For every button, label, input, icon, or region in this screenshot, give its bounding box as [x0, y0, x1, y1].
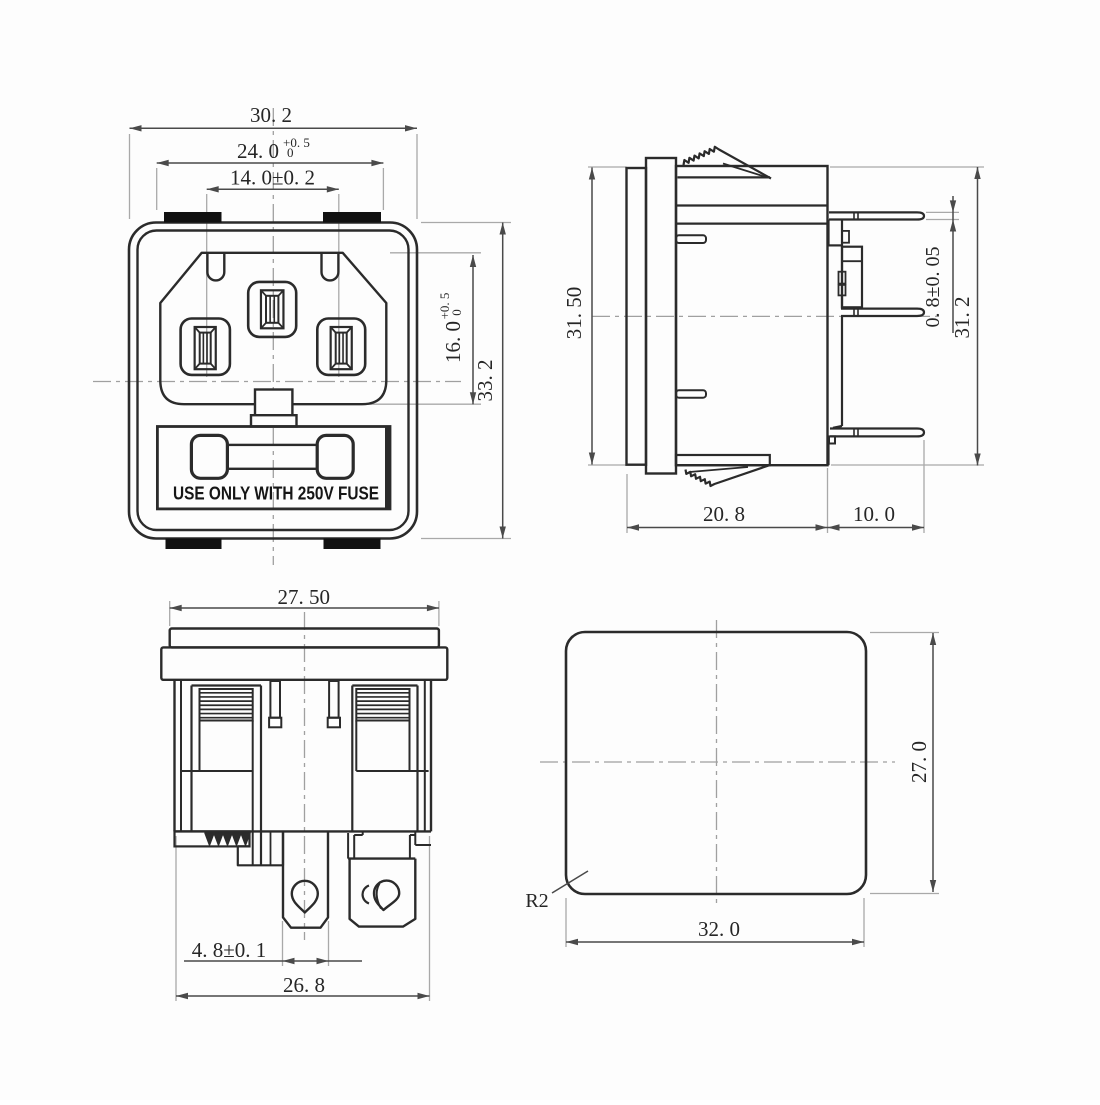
svg-text:16. 0: 16. 0 — [441, 321, 465, 363]
svg-text:0: 0 — [287, 145, 294, 160]
svg-text:0. 8±0. 05: 0. 8±0. 05 — [922, 247, 944, 328]
svg-text:14. 0±0. 2: 14. 0±0. 2 — [230, 166, 315, 190]
svg-text:0: 0 — [449, 309, 464, 316]
svg-text:32. 0: 32. 0 — [698, 917, 740, 941]
svg-text:27. 50: 27. 50 — [278, 585, 331, 609]
svg-text:4. 8±0. 1: 4. 8±0. 1 — [192, 938, 267, 962]
svg-text:33. 2: 33. 2 — [473, 360, 497, 402]
svg-text:31. 50: 31. 50 — [562, 287, 586, 340]
svg-text:27. 0: 27. 0 — [907, 741, 931, 783]
svg-text:26. 8: 26. 8 — [283, 973, 325, 997]
svg-text:24. 0: 24. 0 — [237, 139, 279, 163]
svg-text:R2: R2 — [525, 890, 548, 912]
svg-text:20. 8: 20. 8 — [703, 502, 745, 526]
svg-text:30. 2: 30. 2 — [250, 103, 292, 127]
svg-text:10. 0: 10. 0 — [853, 502, 895, 526]
svg-text:USE ONLY WITH 250V FUSE: USE ONLY WITH 250V FUSE — [173, 483, 379, 504]
